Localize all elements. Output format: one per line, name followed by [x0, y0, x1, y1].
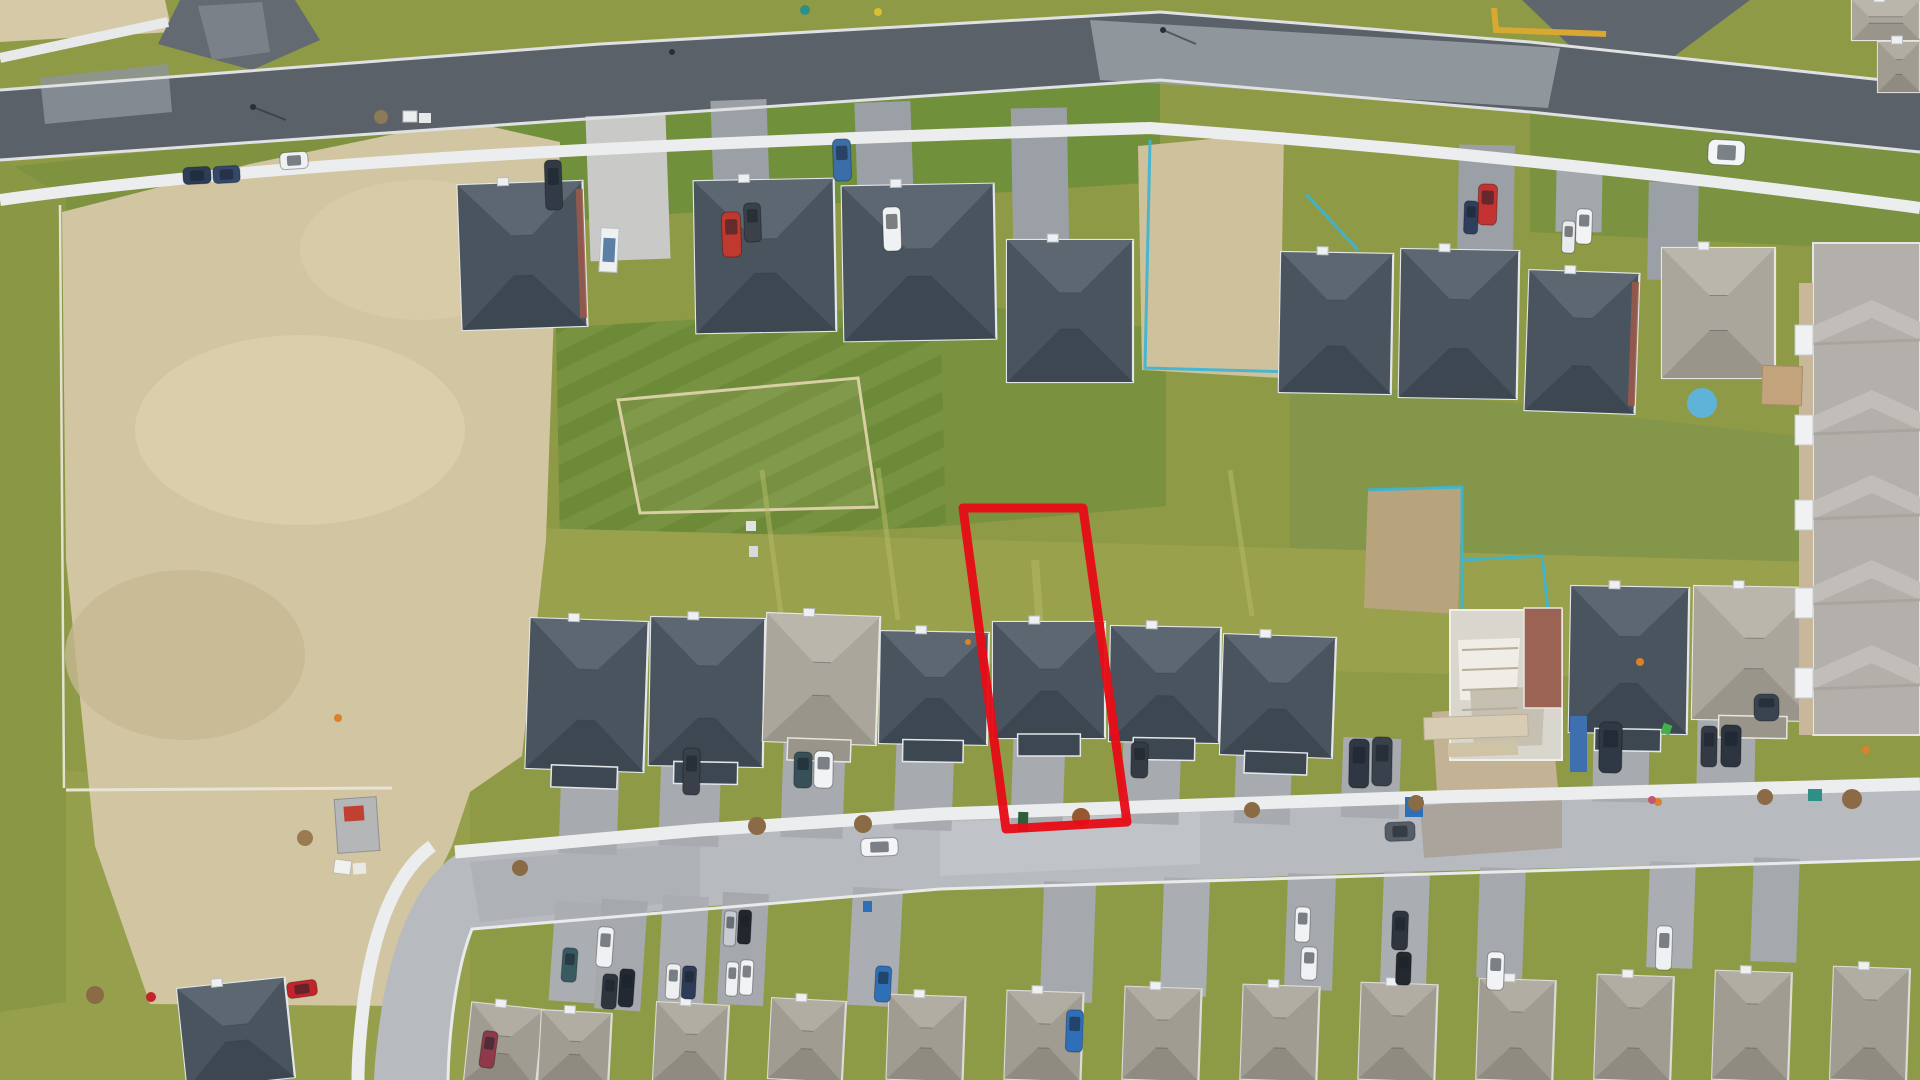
house-mid-4-chimney: [916, 626, 927, 634]
equipment-red: [344, 805, 365, 821]
house-mid-3: [762, 607, 880, 763]
house-mid-10-chimney: [1733, 581, 1744, 589]
drive-bot-7: [1160, 877, 1210, 997]
marker-teal-top: [800, 5, 810, 15]
car-white-bot2-glass: [669, 969, 679, 981]
shrub-7: [1842, 789, 1862, 809]
suv-dark-top1-glass: [547, 168, 558, 185]
house-mid-1-ridge: [578, 669, 597, 670]
car-dark-mid78b-glass: [1376, 745, 1389, 762]
car-dark-mid10a-glass: [1704, 732, 1714, 746]
car-navy-dirt-2: [213, 165, 241, 183]
car-silver-bot: [723, 911, 737, 947]
roof-topright-corner-1: [1852, 0, 1920, 40]
house-mid-2-chimney: [688, 612, 699, 620]
lumber-pile-1: [1424, 714, 1529, 740]
car-garage-mid10-glass: [1759, 698, 1775, 707]
car-gray-street: [1385, 821, 1416, 841]
house-mid-9-chimney: [1609, 581, 1620, 589]
house-bot-4: [887, 989, 966, 1080]
house-mid-4-porch: [902, 739, 963, 762]
car-dark-top2-glass: [747, 209, 758, 223]
car-navy-top56-glass: [1467, 206, 1476, 218]
car-dark-bot1-glass: [605, 979, 615, 992]
house-mid-1-ridge-2: [577, 720, 596, 721]
house-top-8: [1662, 242, 1775, 378]
house-mid-7-porch: [1244, 751, 1307, 775]
house-bot-3: [768, 992, 846, 1080]
house-mid-3-chimney: [803, 608, 814, 616]
house-mid-5-red-lot-porch: [1018, 734, 1081, 756]
blue-tarp: [1570, 716, 1587, 772]
shrub-8: [297, 830, 313, 846]
van-dark-mid2-glass: [686, 755, 697, 771]
townhouse-bay-window-2: [1795, 415, 1813, 445]
car-white-bot3: [725, 962, 739, 997]
car-gray-street-glass: [1392, 826, 1407, 838]
car-white-top6a: [1575, 209, 1592, 245]
house-top-1-ridge: [512, 235, 532, 236]
house-mid-6: [1109, 620, 1221, 761]
house-bot-corner: [464, 996, 544, 1080]
townhouse-bay-window-1: [1795, 325, 1813, 355]
house-bot-11-chimney: [1740, 966, 1751, 974]
townhouse-building: [1795, 243, 1920, 735]
utility-box-2: [749, 546, 758, 557]
house-bot-3-ridge: [802, 1031, 814, 1032]
house-top-4-chimney: [1047, 234, 1058, 242]
car-blue-top3: [832, 139, 851, 182]
drive-bot-12: [1750, 857, 1800, 963]
house-top-7-chimney: [1565, 265, 1576, 273]
house-bot-1: [538, 1004, 612, 1080]
house-bot-3-ridge-2: [801, 1049, 813, 1050]
car-white-mid3-glass: [817, 757, 829, 770]
shrub-5: [1408, 795, 1424, 811]
car-blue-bot1: [874, 966, 892, 1003]
car-white-bot4: [739, 960, 754, 996]
car-white-bot8-glass: [1659, 933, 1670, 948]
house-mid-3-ridge: [813, 662, 831, 663]
house-bot-5-chimney: [1032, 986, 1043, 994]
car-blue-bot2-glass: [1069, 1017, 1080, 1032]
house-bot-10: [1594, 969, 1674, 1080]
pad-top-1: [585, 114, 670, 262]
utility-box-1: [746, 521, 756, 531]
car-teal-mid3: [794, 752, 813, 788]
car-dark-bot2-glass: [622, 975, 632, 989]
roof-topright-corner-1-chimney: [1874, 0, 1885, 2]
car-blue-bot2: [1065, 1010, 1083, 1053]
house-bot-2-ridge-2: [685, 1051, 697, 1052]
dirt-dark-blob-1: [65, 570, 305, 740]
shrub-6: [1757, 789, 1773, 805]
house-bot-12-chimney: [1858, 962, 1869, 970]
car-teal-bot-glass: [565, 953, 575, 965]
marker-pink: [1648, 796, 1656, 804]
car-dark-mid78a: [1349, 739, 1370, 788]
house-top-8-chimney: [1698, 242, 1709, 250]
suv-dark-mid9-glass: [1603, 730, 1618, 748]
suv-dark-mid9: [1599, 722, 1623, 773]
aerial-neighborhood-photo: [0, 0, 1920, 1080]
equipment-trailer: [334, 797, 380, 854]
car-dark-mid78b: [1372, 737, 1393, 786]
house-top-1: [457, 175, 587, 330]
car-red-top56-glass: [1481, 190, 1494, 204]
dirt-bottom-fence: [66, 788, 392, 790]
car-dark-bot1: [601, 974, 618, 1010]
car-white-bot8: [1655, 926, 1673, 971]
car-dark-top2: [743, 203, 761, 243]
van-dark-mid2: [683, 748, 701, 795]
car-white-bot6-glass: [1304, 952, 1315, 964]
marker-orange-3: [1636, 658, 1644, 666]
drive-bot-6: [1040, 881, 1096, 1003]
car-white-top6a-glass: [1579, 214, 1590, 226]
shrub-10: [512, 860, 528, 876]
car-dark-mid10b-glass: [1725, 732, 1738, 747]
car-dark-bot4: [1395, 952, 1411, 986]
house-mid-7-ridge-2: [1269, 709, 1287, 710]
car-white-top6b-glass: [1564, 226, 1573, 237]
manhole: [374, 110, 388, 124]
car-dark-bot4-glass: [1399, 957, 1409, 969]
hydrant-red: [146, 992, 156, 1002]
car-white-bot4-glass: [742, 965, 751, 977]
house-mid-6-chimney: [1146, 621, 1157, 629]
house-bot-12: [1830, 961, 1910, 1080]
marker-yellow-top: [874, 8, 882, 16]
blue-bin-small: [863, 901, 872, 912]
aerial-photo-svg: [0, 0, 1920, 1080]
house-bot-3-chimney: [796, 993, 807, 1002]
house-top-7: [1525, 264, 1640, 414]
house-top-3-chimney: [890, 179, 901, 187]
house-top-2: [694, 173, 837, 333]
house-top-2-chimney: [738, 174, 749, 182]
car-white-bot7: [1486, 952, 1504, 991]
house-mid-7: [1219, 628, 1336, 776]
mailbox-cluster-2: [419, 113, 431, 123]
car-navy-bot: [681, 966, 697, 1000]
townhouse-bay-window-5: [1795, 668, 1813, 698]
sign-board-2: [353, 863, 367, 875]
house-bot-corner-chimney: [495, 999, 507, 1008]
car-teal-mid3-glass: [797, 758, 809, 770]
car-white-bot2: [665, 964, 681, 1000]
house-mid-7-chimney: [1260, 629, 1271, 637]
marker-orange-5: [334, 714, 342, 722]
car-white-street: [861, 837, 899, 856]
house-bot-8: [1358, 977, 1438, 1080]
house-mid-1-porch: [551, 765, 618, 789]
house-bot-7: [1240, 979, 1319, 1080]
van-white-top3-glass: [886, 214, 898, 229]
house-bot-11: [1712, 965, 1792, 1080]
house-top-3: [842, 178, 997, 342]
house-top-7-ridge-2: [1572, 365, 1590, 366]
left-edge-strip: [0, 158, 66, 1012]
sign-board-1: [333, 859, 352, 875]
house-mid-1: [525, 612, 649, 790]
car-white-bot6: [1300, 947, 1317, 981]
car-dark-bot3: [1391, 911, 1408, 951]
house-mid-2: [648, 611, 765, 785]
kiddie-pool: [1687, 388, 1717, 418]
car-dark-mid6-glass: [1134, 748, 1145, 760]
car-navy-top56: [1463, 201, 1478, 234]
house-mid-3-ridge-2: [812, 695, 830, 696]
car-white-street-glass: [870, 841, 889, 852]
teal-bin: [1808, 789, 1822, 801]
house-bot-1-ridge: [570, 1041, 581, 1042]
house-top-7-ridge: [1574, 318, 1592, 319]
car-red-top2-glass: [725, 219, 738, 235]
house-bot-6-chimney: [1150, 982, 1161, 990]
car-dark-bot2: [618, 969, 636, 1008]
construction-brick-garage: [1524, 608, 1562, 708]
townhouse-bay-window-4: [1795, 588, 1813, 618]
car-dark-bot3-glass: [1395, 917, 1406, 931]
car-white-on-road-glass: [1717, 145, 1736, 161]
boat-cover: [602, 238, 615, 263]
house-bottomleft-chimney: [211, 978, 223, 987]
car-navy-dirt-2-glass: [219, 169, 233, 180]
car-navy-dirt-1: [183, 166, 212, 184]
car-garage-mid10: [1754, 694, 1779, 721]
car-white-bot1-glass: [600, 933, 611, 947]
deck-backyard: [1761, 365, 1802, 405]
house-mid-5-red-lot: [993, 616, 1105, 756]
truck-white-dirt-glass: [287, 155, 302, 166]
car-navy-bot-glass: [685, 971, 695, 983]
car-white-bot1: [596, 926, 615, 967]
car-teal-bot: [561, 948, 578, 983]
shrub-9: [86, 986, 104, 1004]
dirt-light-blob-1: [135, 335, 465, 525]
house-bot-2-ridge: [686, 1034, 698, 1035]
car-dark-mid10a: [1701, 726, 1718, 767]
dirt-lot-top: [1138, 132, 1284, 378]
car-black-bot-glass: [740, 915, 749, 927]
house-bot-10-chimney: [1622, 970, 1633, 978]
car-dark-mid78a-glass: [1353, 747, 1366, 764]
car-red-top2: [721, 212, 742, 258]
truck-white-dirt: [279, 151, 308, 170]
house-top-6-chimney: [1439, 244, 1450, 252]
shrub-4: [1244, 802, 1260, 818]
shrub-2: [854, 815, 872, 833]
car-red-top56: [1477, 184, 1497, 226]
house-bot-4-chimney: [914, 990, 925, 998]
house-bot-7-chimney: [1268, 980, 1279, 988]
car-maroon-curve-glass: [484, 1036, 495, 1050]
car-blue-bot1-glass: [878, 972, 889, 985]
car-silver-bot-glass: [726, 916, 734, 928]
house-bot-6: [1122, 981, 1201, 1080]
car-white-bot5: [1294, 907, 1310, 943]
house-mid-4: [879, 625, 989, 763]
house-bot-2: [653, 996, 729, 1080]
suv-dark-top1: [544, 160, 563, 211]
car-white-bot5-glass: [1298, 912, 1308, 924]
car-white-bot3-glass: [728, 967, 736, 979]
marker-orange-4: [965, 639, 971, 645]
house-top-6: [1399, 243, 1520, 399]
mailbox-cluster-1: [403, 111, 417, 122]
shrub-1: [748, 817, 766, 835]
marker-orange-2: [1862, 746, 1870, 754]
house-top-5: [1279, 246, 1394, 394]
house-top-5-chimney: [1317, 247, 1328, 255]
house-mid-1-chimney: [568, 613, 579, 621]
car-white-on-road: [1707, 139, 1745, 166]
car-dark-mid6: [1131, 742, 1149, 778]
house-top-1-ridge-2: [513, 275, 533, 276]
house-bot-1-chimney: [564, 1005, 575, 1014]
lamp-post-2: [669, 49, 675, 55]
backyard-fence: [618, 378, 877, 513]
car-red-bottomleft: [286, 979, 318, 999]
car-white-top6b: [1561, 221, 1575, 253]
car-dark-mid10b: [1721, 725, 1742, 767]
car-black-bot: [737, 910, 752, 945]
roof-topright-corner-2: [1878, 36, 1920, 92]
lumber-pile-2: [1448, 741, 1518, 757]
car-navy-dirt-1-glass: [190, 170, 205, 181]
house-mid-5-red-lot-chimney: [1029, 616, 1040, 624]
van-white-top3: [882, 207, 902, 252]
house-bottomleft: [176, 972, 294, 1080]
car-blue-top3-glass: [836, 146, 848, 161]
house-bot-1-ridge-2: [569, 1054, 580, 1055]
townhouse-bay-window-3: [1795, 500, 1813, 530]
house-top-1-chimney: [497, 177, 508, 185]
dirt-patch-mid: [1364, 486, 1462, 614]
car-white-bot7-glass: [1490, 958, 1501, 971]
house-bot-9-chimney: [1504, 974, 1515, 982]
roof-topright-corner-2-chimney: [1891, 36, 1902, 44]
house-top-4: [1007, 234, 1133, 382]
house-mid-7-ridge: [1269, 683, 1287, 684]
car-white-mid3: [814, 751, 834, 788]
